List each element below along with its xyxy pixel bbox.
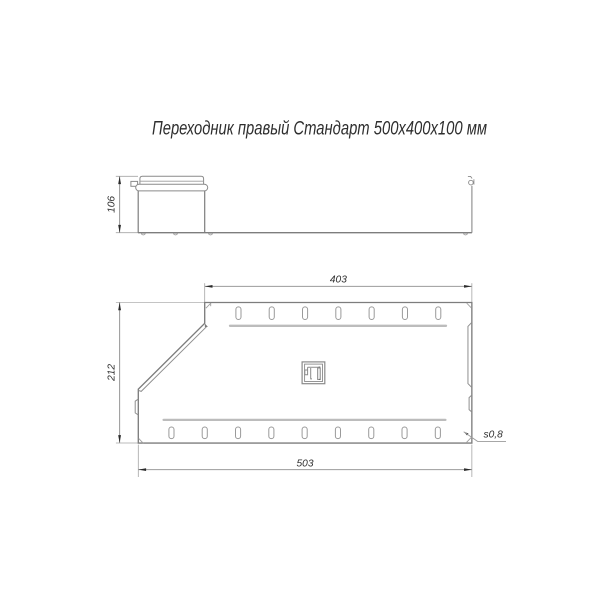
svg-text:503: 503 bbox=[297, 458, 314, 469]
svg-text:106: 106 bbox=[107, 196, 118, 213]
svg-text:s0,8: s0,8 bbox=[484, 429, 504, 440]
svg-text:212: 212 bbox=[107, 364, 118, 382]
svg-text:Переходник правый Стандарт 500: Переходник правый Стандарт 500х400х100 м… bbox=[152, 117, 487, 139]
svg-text:403: 403 bbox=[330, 275, 347, 286]
